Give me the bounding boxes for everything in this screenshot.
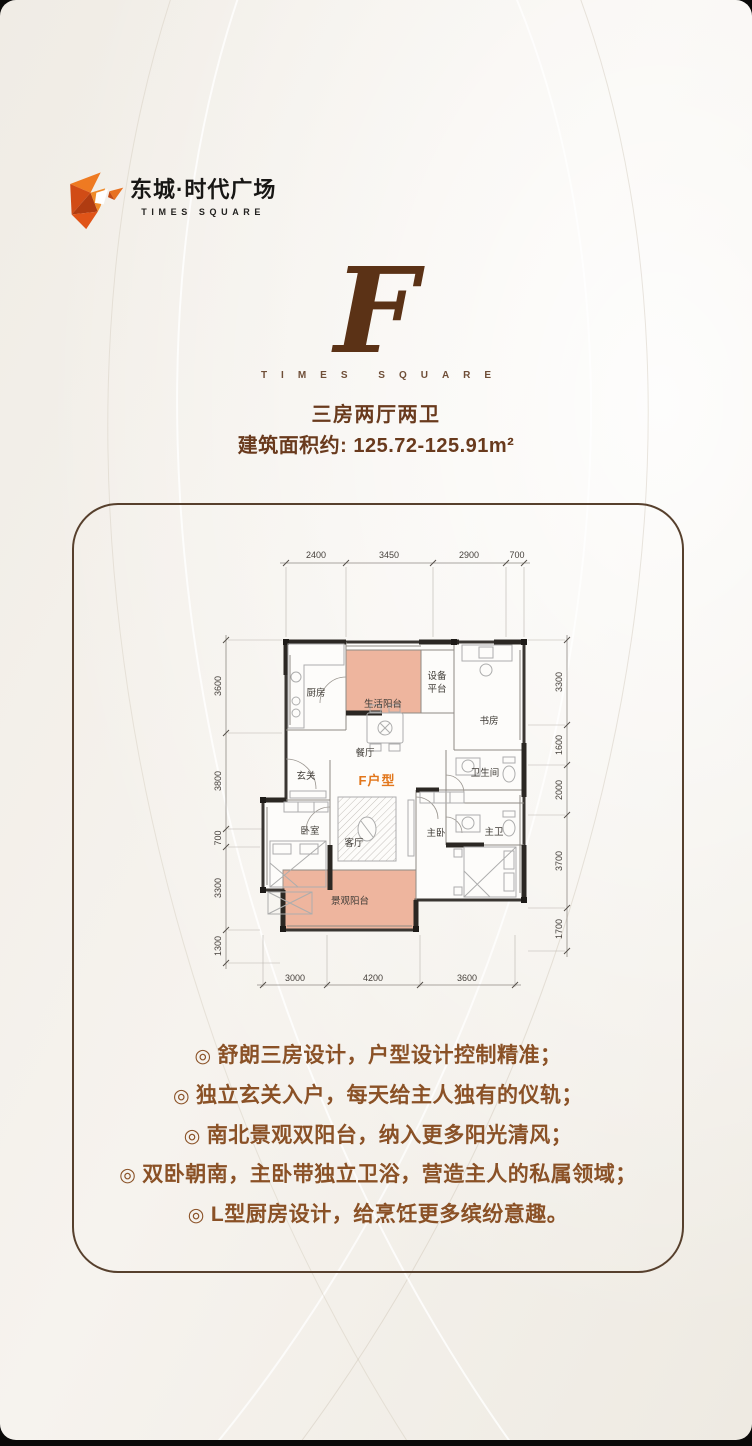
dim-top-3: 2900 <box>459 550 479 560</box>
room-label-entry: 玄关 <box>296 770 316 782</box>
feature-list: ◎舒朗三房设计，户型设计控制精准； ◎独立玄关入户，每天给主人独有的仪轨； ◎南… <box>74 1037 682 1236</box>
feature-item: ◎双卧朝南，主卧带独立卫浴，营造主人的私属领域； <box>74 1156 682 1196</box>
room-label-equipment-2: 平台 <box>427 683 446 695</box>
room-label-kitchen: 厨房 <box>306 687 325 699</box>
dim-left-5: 1300 <box>213 936 223 956</box>
dim-bottom-3: 3600 <box>457 973 477 983</box>
brand-logo-text: 东城·时代广场 TIMES SQUARE <box>130 166 276 217</box>
feature-text: 南北景观双阳台，纳入更多阳光清风； <box>207 1124 573 1147</box>
dim-bottom-1: 3000 <box>285 973 305 983</box>
floorplan-card: 2400 3450 2900 700 3600 3800 700 3300 13… <box>72 503 684 1273</box>
brand-name-en: TIMES SQUARE <box>130 207 276 217</box>
dim-left-2: 3800 <box>213 771 223 791</box>
bullet-icon: ◎ <box>188 1205 205 1226</box>
dim-right-5: 1700 <box>554 919 564 939</box>
unit-letter: F <box>0 252 752 370</box>
bullet-icon: ◎ <box>184 1126 201 1147</box>
dim-right-3: 2000 <box>554 780 564 800</box>
dim-right-1: 3300 <box>554 672 564 692</box>
floorplan-drawing: 2400 3450 2900 700 3600 3800 700 3300 13… <box>164 545 646 1010</box>
brand-name-cn: 东城·时代广场 <box>130 179 276 201</box>
room-label-master-bath: 主卫 <box>484 826 504 838</box>
dim-top-2: 3450 <box>379 550 399 560</box>
dim-left-4: 3300 <box>213 878 223 898</box>
bullet-icon: ◎ <box>119 1165 136 1186</box>
floorplan-container: 2400 3450 2900 700 3600 3800 700 3300 13… <box>164 545 646 1015</box>
feature-item: ◎独立玄关入户，每天给主人独有的仪轨； <box>74 1077 682 1117</box>
room-label-life-balcony: 生活阳台 <box>364 698 402 710</box>
feature-item: ◎舒朗三房设计，户型设计控制精准； <box>74 1037 682 1077</box>
room-label-living: 客厅 <box>344 837 364 849</box>
feature-text: 双卧朝南，主卧带独立卫浴，营造主人的私属领域； <box>142 1163 637 1186</box>
room-label-bedroom: 卧室 <box>300 825 319 837</box>
unit-layout-text: 三房两厅两卫 <box>0 398 752 427</box>
dim-top-4: 700 <box>509 550 524 560</box>
room-label-study: 书房 <box>479 715 498 727</box>
dim-right-2: 1600 <box>554 735 564 755</box>
room-label-dining: 餐厅 <box>355 747 375 759</box>
room-label-view-balcony: 景观阳台 <box>331 895 369 907</box>
room-label-master-bedroom: 主卧 <box>426 827 446 839</box>
feature-text: L型厨房设计，给烹饪更多缤纷意趣。 <box>211 1203 568 1226</box>
feature-item: ◎L型厨房设计，给烹饪更多缤纷意趣。 <box>74 1196 682 1236</box>
feature-text: 独立玄关入户，每天给主人独有的仪轨； <box>196 1084 583 1107</box>
bullet-icon: ◎ <box>173 1086 190 1107</box>
brand-logo-icon <box>60 166 124 234</box>
feature-item: ◎南北景观双阳台，纳入更多阳光清风； <box>74 1117 682 1157</box>
dim-left-3: 700 <box>213 830 223 845</box>
bullet-icon: ◎ <box>194 1046 211 1067</box>
unit-area-text: 建筑面积约: 125.72-125.91m² <box>0 429 752 458</box>
dim-right-4: 3700 <box>554 851 564 871</box>
feature-text: 舒朗三房设计，户型设计控制精准； <box>218 1044 562 1067</box>
poster-page: 东城·时代广场 TIMES SQUARE F TIMES SQUARE 三房两厅… <box>0 0 752 1440</box>
dim-top-1: 2400 <box>306 550 326 560</box>
dim-left-1: 3600 <box>213 676 223 696</box>
dim-bottom-2: 4200 <box>363 973 383 983</box>
brand-logo: 东城·时代广场 TIMES SQUARE <box>60 166 276 234</box>
room-label-bathroom: 卫生间 <box>471 767 500 779</box>
unit-type-label: F户型 <box>359 773 396 788</box>
room-label-equipment-1: 设备 <box>427 670 447 682</box>
hero-tagline: TIMES SQUARE <box>0 370 752 381</box>
